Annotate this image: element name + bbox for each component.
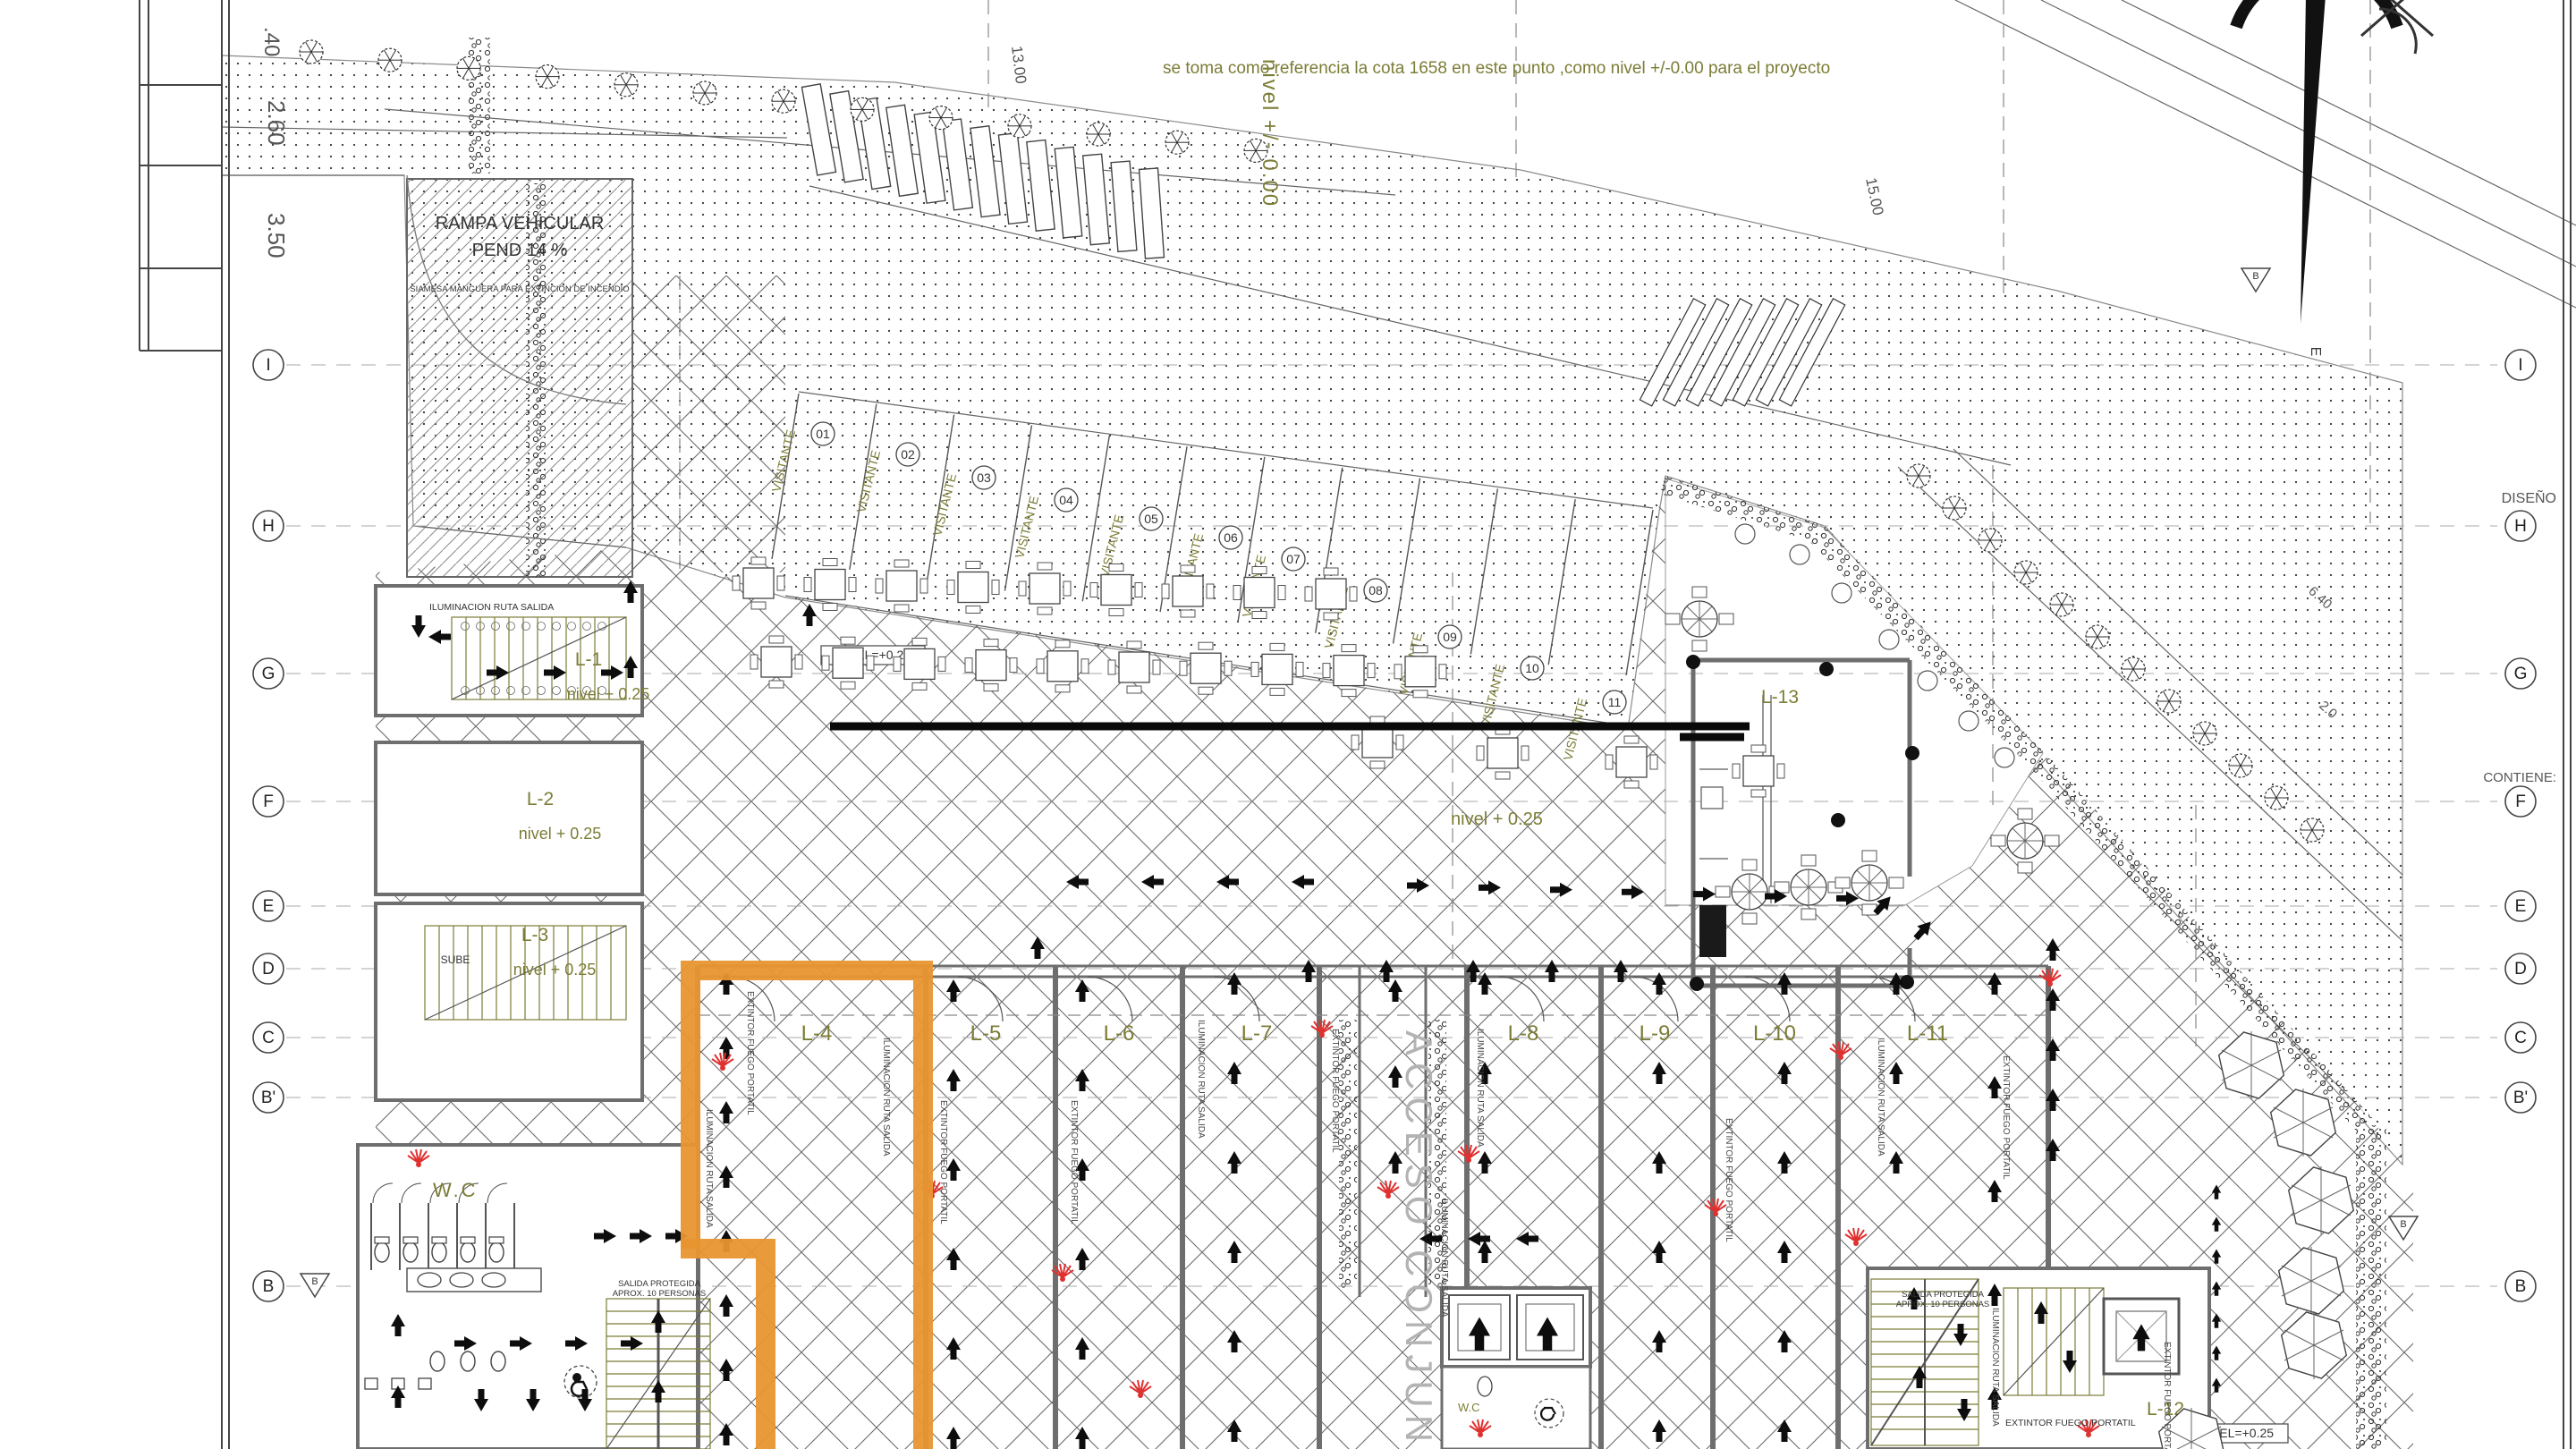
locale-label: L-8 <box>1508 1021 1539 1046</box>
chair <box>822 656 829 670</box>
nozzle <box>416 1162 421 1167</box>
chair <box>1296 662 1303 676</box>
section-triangle-label: B <box>311 1276 318 1287</box>
illumination-label-v: ILUMINACION RUTA SALIDA <box>1990 1308 2000 1427</box>
table-top <box>958 572 988 603</box>
locale-level-label: nivel + 0.25 <box>513 961 597 979</box>
terrace-light <box>1832 583 1851 603</box>
tree-icon <box>2086 625 2109 648</box>
grid-bubble-right-label: I <box>2518 356 2522 375</box>
grid-bubble-right-label: C <box>2514 1029 2527 1047</box>
illumination-label-v: ILUMINACION RUTA SALIDA <box>1876 1038 1885 1157</box>
toilet-icon <box>491 1352 505 1371</box>
parking-number: 01 <box>816 427 830 441</box>
protected-exit-1b: APROX. 10 PERSONAS <box>613 1289 707 1299</box>
parking-number: 04 <box>1059 493 1073 507</box>
chair <box>965 658 972 673</box>
chair <box>1521 746 1529 760</box>
chair <box>1055 685 1070 692</box>
parking-number: 07 <box>1286 552 1301 566</box>
illumination-label-h: ILUMINACION RUTA SALIDA <box>429 602 554 613</box>
chair <box>1889 877 1903 888</box>
nozzle <box>1138 1393 1143 1398</box>
chair <box>1624 781 1639 788</box>
parking-number: 05 <box>1144 512 1158 526</box>
illumination-label-v: ILUMINACION RUTA SALIDA <box>1475 1029 1485 1148</box>
chair <box>1801 909 1816 919</box>
chair <box>823 559 837 566</box>
chair <box>1323 664 1330 678</box>
chair <box>1742 860 1757 870</box>
chair <box>1233 586 1241 600</box>
chair <box>1055 640 1070 648</box>
urinal-icon <box>419 1378 431 1389</box>
table-top <box>1743 756 1774 786</box>
terrace-light <box>1959 711 1979 731</box>
tree-icon <box>2050 593 2073 616</box>
chair <box>1352 735 1359 750</box>
locale-level-label: nivel + 0.25 <box>567 685 650 703</box>
tree-icon <box>300 40 323 64</box>
locale-label: L-3 <box>521 925 548 945</box>
table-top <box>1047 651 1078 682</box>
design-label: DISEÑO <box>2502 488 2556 506</box>
chair <box>1751 745 1766 752</box>
chair <box>1692 640 1707 651</box>
chair <box>1370 761 1385 768</box>
table-top <box>1362 727 1393 758</box>
chair <box>1665 614 1680 624</box>
tree-icon <box>1165 131 1189 154</box>
chair <box>1181 610 1195 617</box>
tree-icon <box>2229 754 2252 777</box>
nozzle <box>1713 1211 1718 1216</box>
protected-exit-2a: SALIDA PROTEGIDA <box>1902 1290 1985 1300</box>
toilet-icon <box>432 1242 446 1262</box>
table-top <box>1191 653 1221 683</box>
table-top <box>1119 652 1149 682</box>
grid-bubble-left-label: H <box>262 517 275 536</box>
wc-label-small: W.C <box>1458 1401 1480 1414</box>
toilet-icon <box>375 1242 389 1262</box>
tree-icon <box>851 97 874 121</box>
chair <box>1396 735 1403 750</box>
wheelchair-icon <box>572 1373 581 1382</box>
chair <box>1624 736 1639 743</box>
tree-icon <box>2265 786 2288 809</box>
grid-bubble-left-label: C <box>262 1029 275 1047</box>
chair <box>894 560 909 567</box>
tree-icon <box>2014 561 2038 584</box>
table-top <box>904 648 935 679</box>
locale-building <box>376 903 642 1100</box>
tree-icon <box>2122 657 2145 681</box>
chair <box>1692 587 1707 597</box>
terrace-light <box>1790 545 1809 564</box>
chair <box>1742 913 1757 924</box>
chair <box>1716 886 1730 897</box>
chair <box>1368 664 1375 678</box>
chair <box>1199 687 1213 694</box>
contains-label: CONTIENE: <box>2483 770 2556 785</box>
grid-bubble-left-label: G <box>262 665 275 683</box>
locale-label: L-9 <box>1640 1021 1671 1046</box>
locale-label: L-1 <box>575 649 602 670</box>
chair <box>1324 568 1338 575</box>
locale-label: L-5 <box>970 1021 1002 1046</box>
protected-exit-2b: APROX. 10 PERSONAS <box>1896 1300 1990 1309</box>
chair <box>1109 609 1123 616</box>
nozzle <box>1853 1241 1859 1246</box>
tree-icon <box>1087 123 1110 146</box>
dim-350: 3.50 <box>263 213 290 258</box>
ramp-title-2: PEND 14 % <box>472 241 568 260</box>
grid-bubble-right-label: B <box>2515 1277 2527 1296</box>
l13-door <box>1699 905 1726 957</box>
ramp-title-1: RAMPA VEHICULAR <box>436 214 605 233</box>
grid-bubble-right-label: H <box>2514 517 2527 536</box>
chair <box>1162 584 1169 598</box>
toilet-icon <box>461 1242 475 1262</box>
tree-icon <box>2157 690 2181 713</box>
dim-260: 2.60 <box>263 100 290 146</box>
extinguisher-label-v: EXTINTOR FUEGO PORTATIL <box>745 991 755 1115</box>
chair <box>1090 583 1097 597</box>
column-dot <box>1905 746 1919 760</box>
toilet-icon <box>430 1352 445 1371</box>
chair <box>1350 587 1357 601</box>
tree-icon <box>929 106 953 130</box>
toilet-tank <box>489 1237 504 1243</box>
extinguisher-label-v: EXTINTOR FUEGO PORTATIL <box>1069 1100 1079 1224</box>
chair <box>849 578 856 592</box>
locale-label: L-7 <box>1241 1021 1273 1046</box>
column-dot <box>1686 655 1700 669</box>
toilet-icon <box>461 1352 475 1371</box>
tree-icon <box>1008 114 1031 138</box>
locale-label: L-10 <box>1753 1021 1796 1046</box>
toilet-icon <box>489 1242 504 1262</box>
chair <box>867 656 874 670</box>
terrace-light <box>1879 630 1899 649</box>
grid-bubble-left-label: B <box>263 1277 275 1296</box>
chair <box>1038 607 1052 614</box>
plaza-hatch-a <box>633 275 785 572</box>
chair <box>769 681 784 688</box>
extinguisher-label-v: EXTINTOR FUEGO PORTATIL <box>2001 1055 2011 1180</box>
locale-label: L-2 <box>527 789 554 809</box>
chair <box>947 580 954 595</box>
chair <box>1270 643 1284 650</box>
sink-icon <box>450 1273 473 1287</box>
grid-bubble-right-label: D <box>2514 960 2527 979</box>
ramp-note: SIAMESA MANGUERA PARA EXTINCION DE INCEN… <box>410 284 629 294</box>
nozzle <box>2047 981 2053 987</box>
chair <box>2018 809 2032 819</box>
chair <box>992 580 999 595</box>
table-top <box>1173 576 1203 606</box>
chair <box>1413 646 1428 653</box>
chair <box>1019 581 1026 596</box>
table-top <box>743 568 774 598</box>
column-dot <box>1900 975 1914 989</box>
grid-bubble-left-label: B' <box>261 1089 275 1107</box>
wc-label: W.C <box>433 1179 479 1201</box>
sink-icon <box>482 1273 505 1287</box>
chair <box>1270 688 1284 695</box>
chair <box>1496 772 1510 779</box>
parking-number: 06 <box>1224 530 1238 545</box>
compass-north-icon: E <box>2236 0 2433 356</box>
chair <box>984 640 998 647</box>
nozzle <box>1060 1276 1065 1282</box>
tree-icon <box>1979 529 2002 552</box>
illumination-label-v: ILUMINACION RUTA SALIDA <box>881 1038 891 1157</box>
chair <box>920 579 928 593</box>
dim-street-left: 13.00 <box>1008 45 1030 85</box>
sink-icon <box>418 1273 441 1287</box>
chair <box>894 605 909 612</box>
chair <box>1224 661 1232 675</box>
toilet-tank <box>461 1237 475 1243</box>
table-top <box>886 571 917 601</box>
chair <box>769 636 784 643</box>
chair <box>1010 658 1017 673</box>
grid-bubble-right-label: E <box>2515 897 2527 916</box>
chair <box>1127 686 1141 693</box>
locale-level-label: nivel + 0.25 <box>519 825 602 843</box>
chair <box>1751 790 1766 797</box>
chair <box>795 655 802 669</box>
corridor-label: ACCESO CONJUNTO <box>1398 1030 1440 1449</box>
chair <box>1777 764 1784 778</box>
chair <box>1181 565 1195 572</box>
chair <box>1207 584 1214 598</box>
table-top <box>1101 575 1131 606</box>
parking-number: 02 <box>901 447 915 462</box>
chair <box>1108 660 1115 674</box>
nozzle <box>1478 1432 1483 1437</box>
compass-east-label: E <box>2308 347 2323 357</box>
column-dot <box>1690 977 1704 991</box>
toilet-icon <box>403 1242 418 1262</box>
chair <box>966 606 980 614</box>
grid-bubble-right-label: B' <box>2513 1089 2528 1107</box>
nozzle <box>1466 1157 1471 1163</box>
toilet-tank <box>375 1237 389 1243</box>
l13-appliance <box>1701 787 1723 809</box>
protected-exit-1a: SALIDA PROTEGIDA <box>618 1279 701 1289</box>
locale-label: L-13 <box>1761 687 1799 708</box>
parking-number: 08 <box>1368 583 1383 597</box>
chair <box>1305 587 1312 601</box>
grid-bubble-right-label: G <box>2514 665 2528 683</box>
extinguisher-label-v: EXTINTOR FUEGO PORTATIL <box>1330 1029 1340 1153</box>
column-dot <box>1819 662 1834 676</box>
chair <box>2018 862 2032 873</box>
locale-label: L-11 <box>1907 1021 1948 1046</box>
table-top <box>833 648 863 678</box>
chair <box>751 557 766 564</box>
section-triangle-label: B <box>2252 271 2258 282</box>
blueprint-sheet: IIHHGGFFEEDDCCB'B'BBBBB 01VISITANTE02VIS… <box>0 0 2576 1449</box>
table-top <box>1405 657 1436 687</box>
chair <box>1342 690 1356 697</box>
table-top <box>1262 654 1292 684</box>
chair <box>1153 660 1160 674</box>
parking-number: 09 <box>1443 630 1457 644</box>
chair <box>823 604 837 611</box>
site-plan-drawing: IIHHGGFFEEDDCCB'B'BBBBB 01VISITANTE02VIS… <box>0 0 2576 1449</box>
chair <box>751 602 766 609</box>
terrace-light <box>1995 748 2014 767</box>
table-top <box>761 647 792 677</box>
chair <box>966 562 980 569</box>
nozzle <box>1319 1032 1325 1038</box>
chair <box>1342 645 1356 652</box>
chair <box>938 657 945 671</box>
table-top <box>815 570 845 600</box>
sube-label: SUBE <box>441 953 470 966</box>
chair <box>1081 659 1089 674</box>
tree-icon <box>772 89 795 113</box>
chair <box>1733 764 1740 778</box>
chair <box>1477 746 1484 760</box>
chair <box>1606 755 1613 769</box>
chair <box>912 682 927 690</box>
extinguisher-label-v: EXTINTOR FUEGO PORTATIL <box>1724 1118 1733 1242</box>
table-top <box>1616 747 1647 777</box>
nozzle <box>2086 1432 2091 1437</box>
urinal-icon <box>365 1378 377 1389</box>
chair <box>1413 691 1428 698</box>
chair <box>984 684 998 691</box>
chair <box>804 578 811 592</box>
chair <box>1719 614 1733 624</box>
locale-label: L-6 <box>1104 1021 1135 1046</box>
column-dot <box>1831 813 1845 827</box>
dim-street-right: 15.00 <box>1862 176 1886 217</box>
table-top <box>1244 578 1275 608</box>
table-top <box>1487 738 1518 768</box>
chair <box>1835 877 1850 888</box>
tree-icon <box>1907 464 1930 487</box>
grid-bubble-left-label: F <box>263 792 274 811</box>
chair <box>2045 835 2059 846</box>
extinguisher-label-v: EXTINTOR FUEGO PORTATIL <box>2162 1342 2172 1449</box>
tree-icon <box>2193 722 2216 745</box>
section-triangle-label: B <box>2400 1219 2406 1230</box>
toilet-icon <box>1478 1377 1492 1396</box>
toilet-tank <box>432 1237 446 1243</box>
nozzle <box>1838 1055 1843 1060</box>
chair <box>1038 563 1052 570</box>
grid-bubble-left-label: I <box>266 356 270 375</box>
chair <box>1063 581 1071 596</box>
chair <box>777 576 784 590</box>
nozzle <box>1385 1193 1391 1199</box>
chair <box>1109 564 1123 572</box>
chair <box>1394 665 1402 679</box>
grid-bubble-left-label: E <box>263 897 275 916</box>
tree-icon <box>1943 496 1966 520</box>
illumination-label-v: ILUMINACION RUTA SALIDA <box>1196 1020 1206 1139</box>
tree-icon <box>457 56 480 80</box>
parking-number: 03 <box>977 470 991 485</box>
chair <box>1180 661 1187 675</box>
table-top <box>1316 579 1346 609</box>
parking-number: 11 <box>1608 695 1622 709</box>
tree-icon <box>614 73 638 97</box>
locale-label: L-4 <box>801 1021 833 1046</box>
table-top <box>976 650 1006 681</box>
chair <box>1252 567 1267 574</box>
extinguisher-label-h: EXTINTOR FUEGO PORTATIL <box>2005 1418 2136 1428</box>
chair <box>912 638 927 645</box>
tree-icon <box>2301 818 2324 842</box>
chair <box>1439 665 1446 679</box>
terrace-light <box>1735 524 1755 544</box>
chair <box>1324 613 1338 620</box>
table-top <box>1030 573 1060 604</box>
extinguisher-label-v: EXTINTOR FUEGO PORTATIL <box>938 1100 948 1224</box>
chair <box>1037 659 1044 674</box>
toilet-tank <box>403 1237 418 1243</box>
chair <box>1801 855 1816 866</box>
chair <box>841 637 855 644</box>
tree-icon <box>693 81 716 105</box>
table-top <box>1334 656 1364 686</box>
tree-icon <box>378 48 402 72</box>
chair <box>1991 835 2005 846</box>
grid-bubble-left-label: D <box>262 960 275 979</box>
chair <box>1862 904 1877 915</box>
plaza-level-label: nivel + 0.25 <box>1451 809 1543 829</box>
chair <box>1135 583 1142 597</box>
tree-icon <box>536 65 559 89</box>
chair <box>1199 642 1213 649</box>
datum-vertical-label: nivel +/- 0.00 <box>1258 59 1282 208</box>
acceso-conjunto-label: ACCESO CONJUNTO <box>1398 1030 1440 1449</box>
nozzle <box>720 1065 725 1071</box>
chair <box>841 682 855 689</box>
grid-bubble-right-label: F <box>2515 792 2526 811</box>
chair <box>750 655 758 669</box>
chair <box>1252 612 1267 619</box>
chair <box>733 576 740 590</box>
chair <box>1278 586 1285 600</box>
chair <box>1127 641 1141 648</box>
locale-building <box>376 742 642 894</box>
chair <box>876 579 883 593</box>
chair <box>1251 662 1258 676</box>
chair <box>1862 851 1877 861</box>
terrace-light <box>1918 671 1937 691</box>
parking-number: 10 <box>1525 661 1539 675</box>
illumination-label-v: ILUMINACION RUTA SALIDA <box>704 1109 714 1228</box>
chair <box>894 657 901 671</box>
chair <box>1650 755 1657 769</box>
dim-040: .40 <box>259 27 284 56</box>
